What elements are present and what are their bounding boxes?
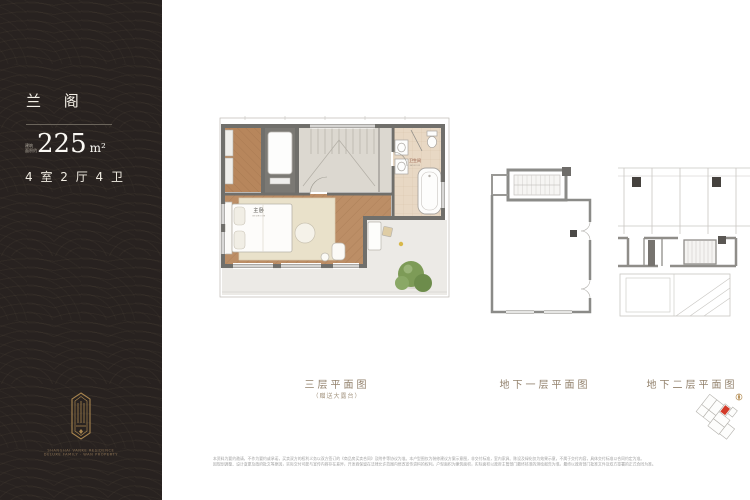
compass-icon xyxy=(736,393,742,401)
toilet xyxy=(427,131,437,148)
b2-column-right xyxy=(712,177,721,187)
area-unit: m² xyxy=(90,141,106,155)
floor-plan-basement1 xyxy=(478,166,613,321)
b2-stairs xyxy=(684,240,716,264)
b1-notch xyxy=(492,175,508,195)
caption-level3: 三层平面图 xyxy=(267,376,407,391)
b1-room-outline xyxy=(492,195,590,312)
b2-column-left xyxy=(632,177,641,187)
sidebar: 兰 阁 建筑 面积约 225 m² 4 室 2 厅 4 卫 SHANGHAI V… xyxy=(0,0,162,500)
brand-text: SHANGHAI VANKE RESIDENCE DELUXE FAMILY ·… xyxy=(0,448,162,462)
b2-parking-bottom xyxy=(620,274,730,316)
bathroom-label-en: BATHROOM xyxy=(410,164,421,167)
room-layout-text: 4 室 2 厅 4 卫 xyxy=(25,168,125,185)
ottoman xyxy=(295,223,315,243)
bathroom-label: 卫生间 xyxy=(409,157,421,163)
bedroom-label: 主卧 xyxy=(253,206,264,214)
brand-line2: DELUXE FAMILY · WAN PROPERTY xyxy=(0,452,162,456)
bathtub xyxy=(418,168,441,214)
floor-plan-level3: 主卧 BEDROOM 卫生间 BATHROOM xyxy=(215,106,455,306)
elevator xyxy=(263,126,297,194)
disclaimer-line2: 因规划调整、设计变更及政府批文等原因，实际交付可能与宣传内容存在差异，开发商保留… xyxy=(213,462,747,468)
bedroom-label-en: BEDROOM xyxy=(253,216,266,218)
subcaption-level3: （赠送大露台） xyxy=(267,391,407,400)
b1-shaft xyxy=(570,230,577,237)
art-deco-emblem-icon xyxy=(0,392,162,444)
divider xyxy=(26,124,112,125)
b1-stair-room xyxy=(508,167,571,200)
disclaimer: 本资料为要约邀请，不作为要约或承诺，买卖双方的权利义务以双方签订的《商品房买卖合… xyxy=(213,456,747,470)
caption-basement1: 地下一层平面图 xyxy=(475,376,615,391)
site-key-map xyxy=(686,390,748,448)
property-title: 兰 阁 xyxy=(26,90,88,111)
area-block: 建筑 面积约 225 m² xyxy=(25,131,106,157)
caption-basement2: 地下二层平面图 xyxy=(622,376,750,391)
terrace-plant xyxy=(399,242,403,246)
area-prefix-line2: 面积约 xyxy=(25,149,34,153)
area-value: 225 xyxy=(37,131,87,157)
b2-corridor xyxy=(618,236,736,266)
area-prefix: 建筑 面积约 xyxy=(25,144,34,153)
floor-plan-basement2 xyxy=(618,166,750,321)
